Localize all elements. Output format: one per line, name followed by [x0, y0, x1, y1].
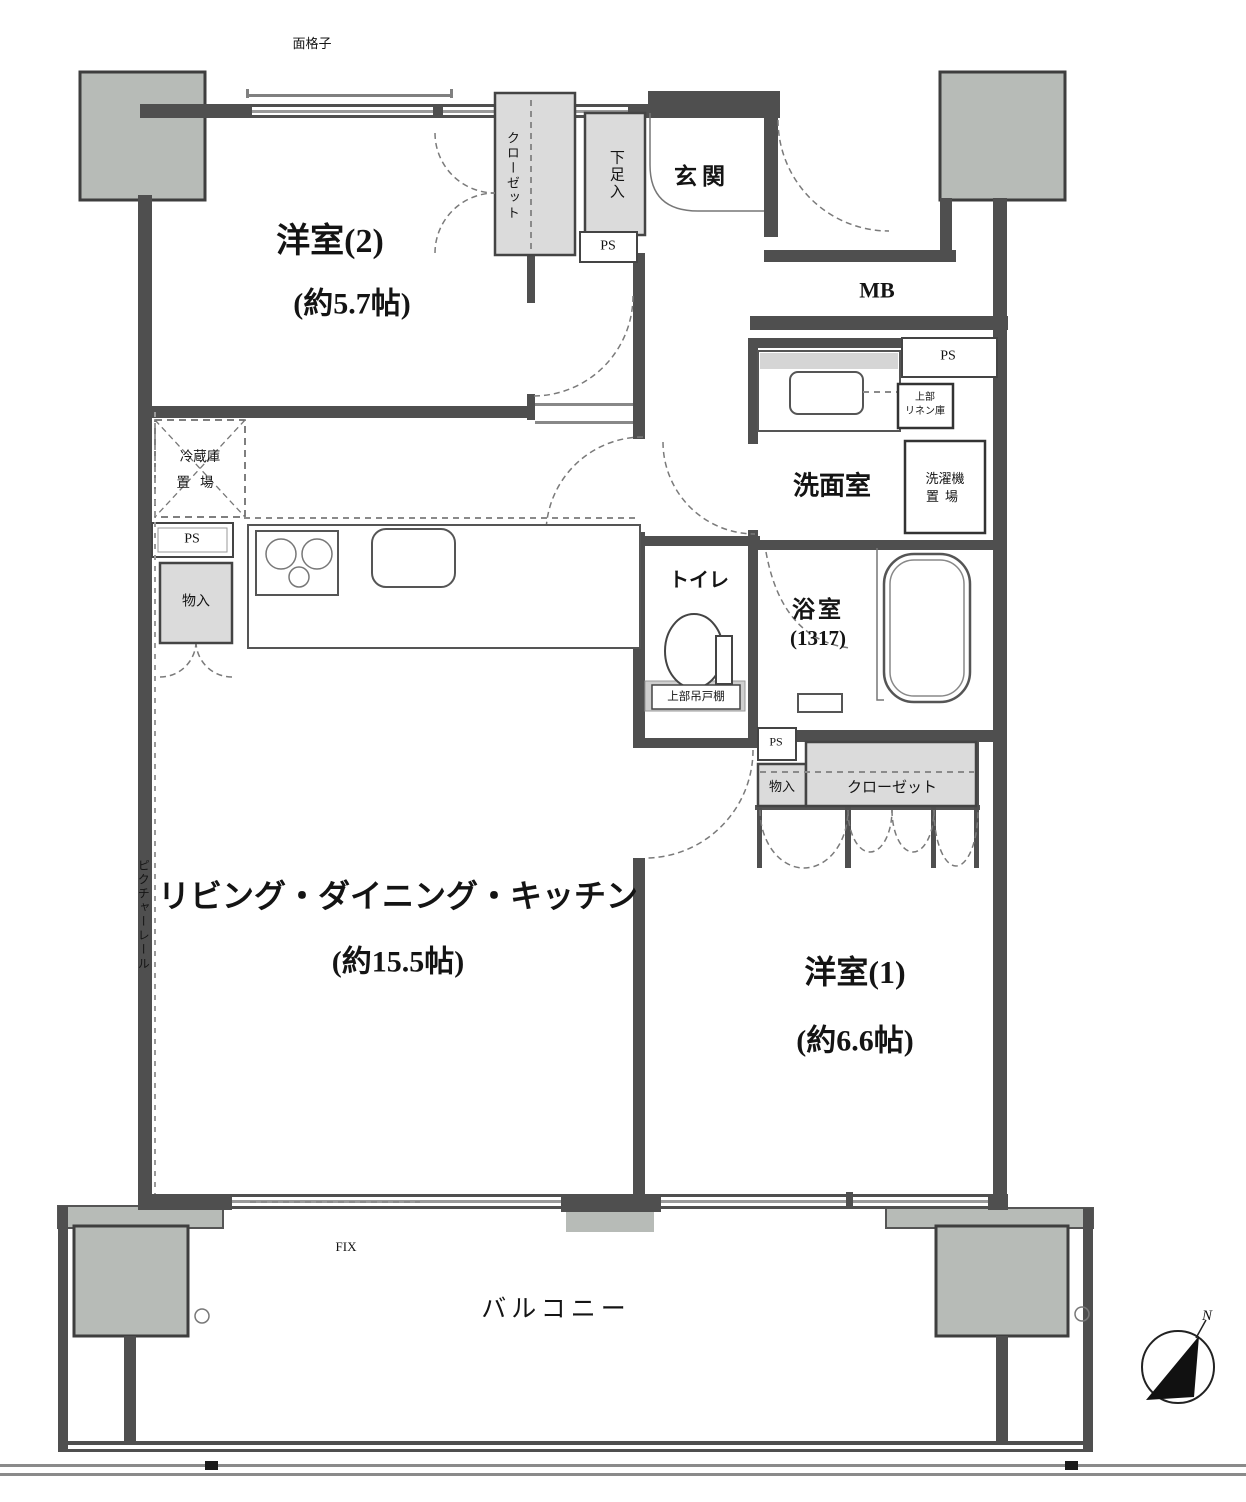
- balcony-edge-left: [58, 1206, 68, 1452]
- lattice-line: [247, 94, 452, 97]
- ps-right-label: PS: [940, 350, 956, 365]
- entrance-label: 玄関: [674, 165, 730, 189]
- toilet-label: トイレ: [669, 571, 729, 592]
- balcony-parapet: [58, 1441, 1093, 1445]
- laundry-label-2: 置場: [926, 490, 964, 504]
- wall-mb-top: [764, 250, 956, 262]
- genkan-step-line: [650, 113, 764, 211]
- wall-pillar-stub: [940, 198, 952, 256]
- bathroom-size: (1317): [790, 627, 846, 649]
- wall-entry-top: [648, 91, 780, 111]
- window-top-mullion: [433, 104, 443, 118]
- toilet-bowl: [665, 614, 723, 688]
- storage-right-label: 物入: [769, 780, 795, 794]
- room2-name: 洋室(2): [276, 224, 384, 260]
- ldk-name: リビング・ダイニング・キッチン: [158, 880, 638, 914]
- floor-plan: 面格子 洋室(2) (約5.7帖) クローゼット 下足入 玄関 MB PS PS…: [0, 0, 1246, 1502]
- wall-hall-west: [633, 253, 645, 439]
- closet-right-label: クローゼット: [847, 781, 937, 797]
- vanity-sink: [790, 372, 863, 414]
- wall-mb-bottom: [750, 316, 1008, 330]
- washroom-door-arc: [663, 442, 755, 534]
- closet-top-door-arc: [435, 133, 495, 193]
- laundry-label-1: 洗濯機: [925, 472, 964, 486]
- wall-room2-ldk: [150, 406, 535, 418]
- toilet-shelf-label: 上部吊戸棚: [667, 691, 725, 703]
- wall-entry-west: [764, 91, 778, 237]
- wall-bottom-b-pad: [566, 1212, 654, 1232]
- ldk-size: (約15.5帖): [332, 946, 464, 978]
- fridge-label-1: 冷蔵庫: [180, 450, 221, 464]
- compass: [1142, 1320, 1214, 1403]
- ldk-door-arc: [546, 437, 643, 534]
- mb-label: MB: [859, 278, 894, 301]
- room2-door-arc: [533, 296, 633, 396]
- compass-north-label: N: [1202, 1309, 1212, 1325]
- window-ldk-top: [232, 1194, 561, 1197]
- closet-right-door-arcs: [760, 810, 848, 868]
- balcony-edge-right: [1083, 1208, 1093, 1452]
- shoe-box-label: 下足入: [607, 150, 623, 201]
- kitchen: [152, 420, 640, 648]
- wall-west: [138, 195, 152, 1208]
- picture-rail-label: ピクチャーレール: [137, 859, 150, 971]
- room1-name: 洋室(1): [804, 956, 905, 990]
- window-room1-mullion: [846, 1192, 853, 1209]
- linen-label-2: リネン庫: [905, 407, 945, 418]
- room1-size: (約6.6帖): [796, 1025, 913, 1057]
- balcony-drain-left: [195, 1309, 209, 1323]
- ps-middle-label: PS: [769, 736, 782, 749]
- fridge-label-2: 置場: [177, 476, 224, 490]
- storage-left-door-arc: [160, 643, 196, 677]
- bathtub: [884, 554, 970, 702]
- ground-line: [0, 1464, 1246, 1467]
- pillar-top-left: [80, 72, 205, 200]
- floor-plan-drawing: [0, 0, 1246, 1502]
- sanitary: [645, 338, 997, 712]
- lattice-label: 面格子: [292, 37, 331, 51]
- toilet-tank: [716, 636, 732, 684]
- wall-bottom-b: [561, 1194, 661, 1212]
- pillar-top-right: [940, 72, 1065, 200]
- pillar-bottom-left: [74, 1226, 188, 1336]
- balcony-label: バルコニー: [481, 1297, 631, 1323]
- wall-bottom-c: [988, 1194, 1008, 1210]
- wall-toilet-north: [633, 536, 760, 546]
- closet-top-label: クローゼット: [505, 131, 519, 221]
- bath-step: [798, 694, 842, 712]
- pillar-bottom-right: [936, 1226, 1068, 1336]
- wall-toilet-south: [633, 738, 760, 748]
- wall-washroom-north: [748, 338, 910, 348]
- wall-washroom-bath: [748, 540, 997, 550]
- ps-kitchen-label: PS: [184, 533, 200, 548]
- laundry-box: [905, 441, 985, 533]
- wall-bottom-a: [138, 1194, 232, 1210]
- ps-entrance-label: PS: [600, 240, 616, 255]
- linen-label-1: 上部: [915, 393, 935, 404]
- fix-window-label: FIX: [336, 1240, 357, 1254]
- washroom-label: 洗面室: [793, 472, 871, 499]
- room2-size: (約5.7帖): [293, 288, 410, 320]
- kitchen-sink: [372, 529, 455, 587]
- window-room1-top: [661, 1194, 988, 1197]
- entrance-door-arc: [778, 120, 889, 231]
- storage-left-label: 物入: [182, 596, 210, 611]
- room1-door-arc: [645, 750, 753, 858]
- bathroom-name: 浴室: [792, 598, 844, 622]
